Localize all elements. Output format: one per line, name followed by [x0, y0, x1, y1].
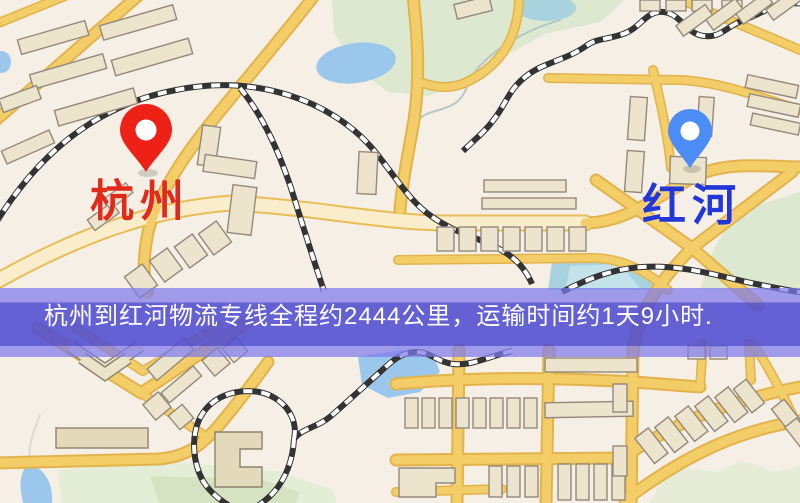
route-info-banner: 杭州到红河物流专线全程约2444公里，运输时间约1天9小时. [0, 288, 800, 357]
destination-label: 红河 [642, 184, 742, 228]
route-info-text: 杭州到红河物流专线全程约2444公里，运输时间约1天9小时. [44, 302, 713, 332]
map-canvas[interactable] [0, 0, 800, 503]
map-screenshot: 杭州 红河 杭州到红河物流专线全程约2444公里，运输时间约1天9小时. [0, 0, 800, 503]
origin-pin-icon[interactable] [120, 104, 172, 177]
origin-label: 杭州 [90, 180, 190, 224]
